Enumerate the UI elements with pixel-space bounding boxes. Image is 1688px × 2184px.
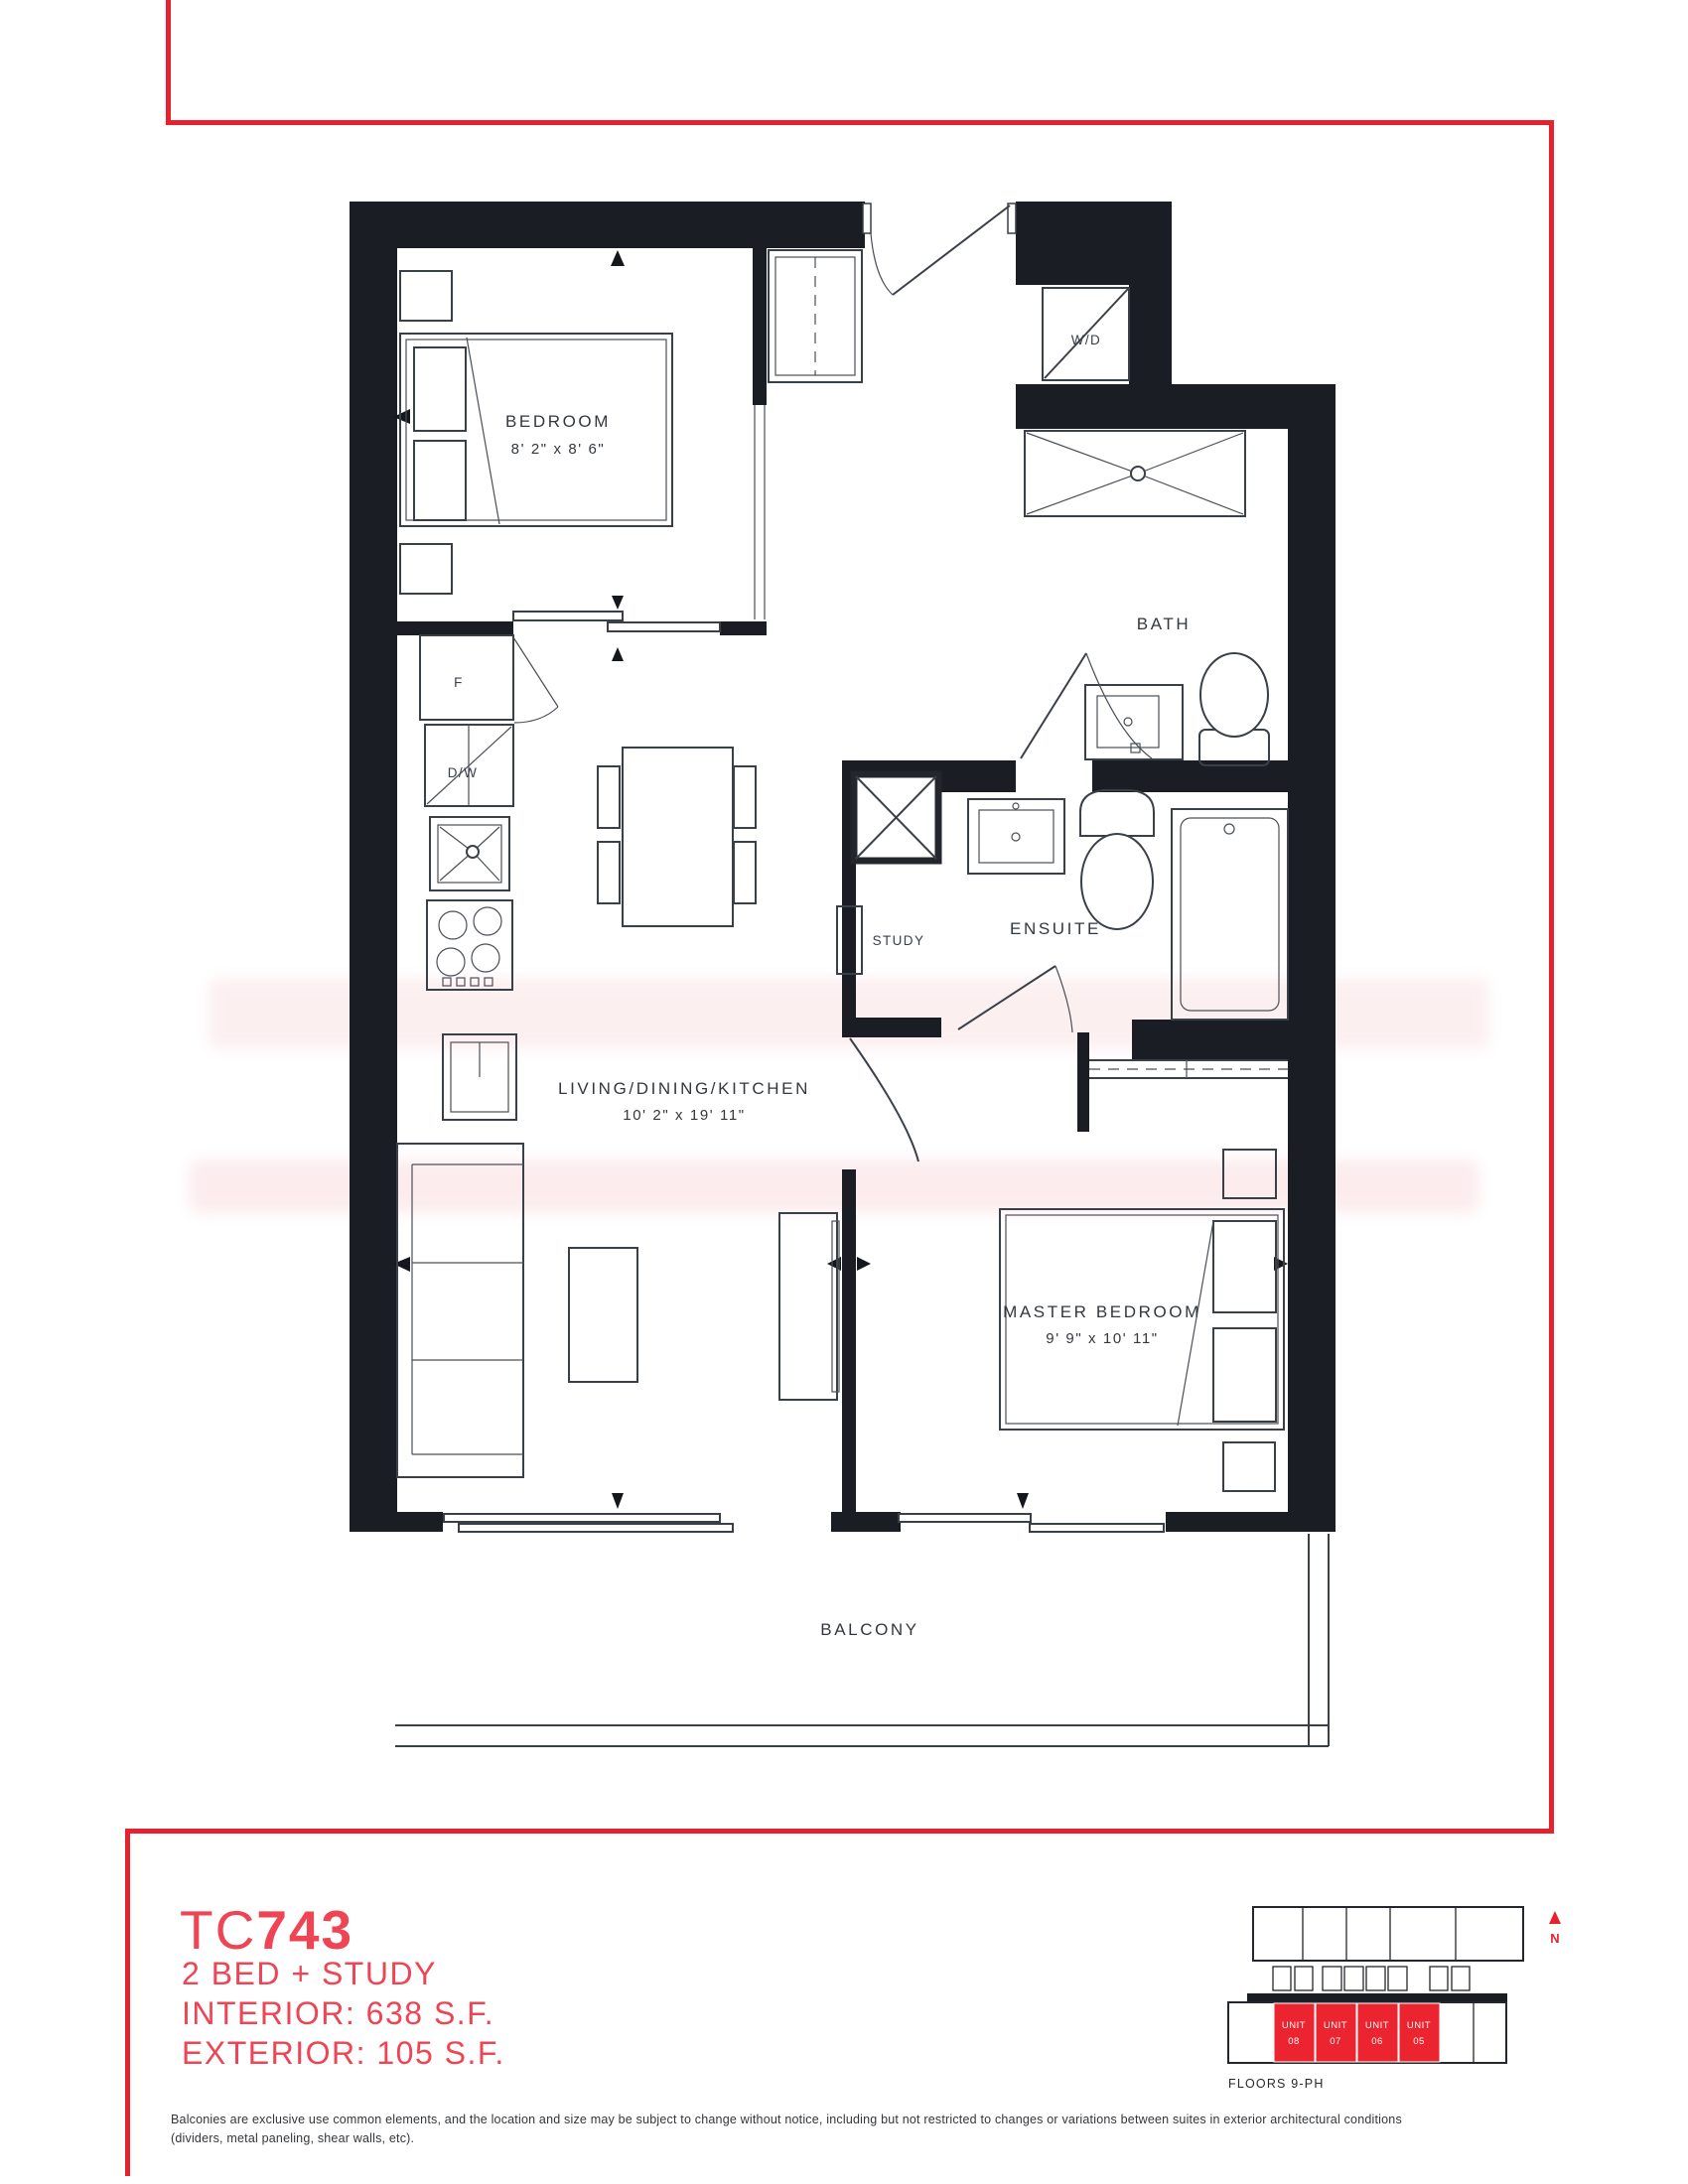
media-console bbox=[779, 1213, 837, 1400]
unit-interior-area: INTERIOR: 638 S.F. bbox=[182, 1995, 494, 2032]
disclaimer-line-2: (dividers, metal paneling, shear walls, … bbox=[171, 2129, 1551, 2148]
unit-model-code: TC743 bbox=[180, 1898, 353, 1962]
ensuite: ENSUITE bbox=[958, 790, 1288, 1032]
toilet-bowl bbox=[1081, 834, 1153, 929]
svg-text:UNIT: UNIT bbox=[1282, 2020, 1306, 2031]
washer-dryer: W/D bbox=[1043, 288, 1129, 380]
room-dims-bedroom: 8' 2" x 8' 6" bbox=[511, 441, 606, 458]
room-dims-living: 10' 2" x 19' 11" bbox=[623, 1107, 745, 1124]
pillow bbox=[1213, 1328, 1276, 1422]
key-plan: UNIT 08 UNIT 07 UNIT 06 UNIT 05 FLOORS 9… bbox=[1228, 1907, 1561, 2091]
balcony-door-panel bbox=[444, 1514, 720, 1522]
balcony: BALCONY bbox=[395, 1514, 1329, 1746]
svg-text:06: 06 bbox=[1371, 2036, 1383, 2047]
balcony-door-panel bbox=[1030, 1524, 1164, 1532]
svg-text:N: N bbox=[1550, 1931, 1559, 1946]
pillow bbox=[414, 347, 466, 431]
floor-plan-drawing: BEDROOM 8' 2" x 8' 6" W/D BATH bbox=[0, 0, 1688, 2184]
toilet-tank bbox=[1080, 790, 1154, 836]
room-label-bath: BATH bbox=[1137, 614, 1191, 633]
bedroom: BEDROOM 8' 2" x 8' 6" bbox=[400, 271, 765, 631]
fridge bbox=[420, 635, 513, 720]
svg-text:08: 08 bbox=[1288, 2036, 1300, 2047]
sliding-door-panel bbox=[608, 622, 720, 631]
pillow bbox=[414, 441, 466, 520]
walls bbox=[350, 202, 1336, 1532]
unit-model-number: 743 bbox=[256, 1899, 353, 1961]
balcony-door-panel bbox=[899, 1514, 1031, 1522]
entry-door bbox=[871, 205, 1010, 295]
room-label-living: LIVING/DINING/KITCHEN bbox=[558, 1079, 810, 1098]
svg-text:UNIT: UNIT bbox=[1324, 2020, 1347, 2031]
label-fridge: F bbox=[454, 675, 464, 690]
svg-text:UNIT: UNIT bbox=[1407, 2020, 1431, 2031]
balcony-door-panel bbox=[459, 1524, 733, 1532]
room-dims-master: 9' 9" x 10' 11" bbox=[1046, 1330, 1159, 1347]
key-plan-highlighted-units: UNIT 08 UNIT 07 UNIT 06 UNIT 05 bbox=[1274, 2003, 1440, 2062]
room-label-bedroom: BEDROOM bbox=[505, 412, 611, 431]
dining-chair bbox=[734, 842, 756, 903]
dining-chair bbox=[598, 766, 620, 828]
label-dishwasher: D/W bbox=[448, 765, 478, 780]
disclaimer-line-1: Balconies are exclusive use common eleme… bbox=[171, 2111, 1551, 2129]
unit-exterior-area: EXTERIOR: 105 S.F. bbox=[182, 2035, 505, 2072]
bath: BATH bbox=[1021, 431, 1269, 765]
coffee-table bbox=[569, 1248, 637, 1382]
svg-text:07: 07 bbox=[1330, 2036, 1341, 2047]
key-plan-floors-label: FLOORS 9-PH bbox=[1228, 2077, 1325, 2091]
label-washer-dryer: W/D bbox=[1071, 333, 1101, 347]
master-bedroom: MASTER BEDROOM 9' 9" x 10' 11" bbox=[850, 1038, 1288, 1491]
nightstand bbox=[400, 544, 452, 594]
dining-chair bbox=[598, 842, 620, 903]
toilet-bowl bbox=[1200, 653, 1268, 737]
hall-closet bbox=[769, 250, 862, 382]
svg-text:05: 05 bbox=[1413, 2036, 1425, 2047]
disclaimer: Balconies are exclusive use common eleme… bbox=[171, 2111, 1551, 2148]
room-label-master: MASTER BEDROOM bbox=[1003, 1302, 1201, 1321]
svg-text:UNIT: UNIT bbox=[1365, 2020, 1389, 2031]
unit-model-prefix: TC bbox=[180, 1899, 256, 1961]
dining-table bbox=[623, 748, 733, 926]
room-label-ensuite: ENSUITE bbox=[1010, 919, 1101, 938]
room-label-study: STUDY bbox=[873, 933, 925, 948]
sofa bbox=[397, 1144, 523, 1477]
floorplan-sheet: { "colors": { "accent_red": "#E8212F", "… bbox=[0, 0, 1688, 2184]
nightstand bbox=[1223, 1442, 1275, 1491]
dining-chair bbox=[734, 766, 756, 828]
nightstand bbox=[400, 271, 452, 321]
north-arrow-icon: N bbox=[1549, 1911, 1561, 1946]
sliding-door-panel bbox=[513, 612, 623, 620]
pillow bbox=[1213, 1221, 1276, 1312]
kitchen: F D/W bbox=[420, 635, 558, 1120]
room-label-balcony: BALCONY bbox=[820, 1620, 918, 1639]
bathtub bbox=[1172, 809, 1288, 1020]
unit-type: 2 BED + STUDY bbox=[182, 1956, 437, 1992]
nightstand bbox=[1223, 1150, 1276, 1198]
